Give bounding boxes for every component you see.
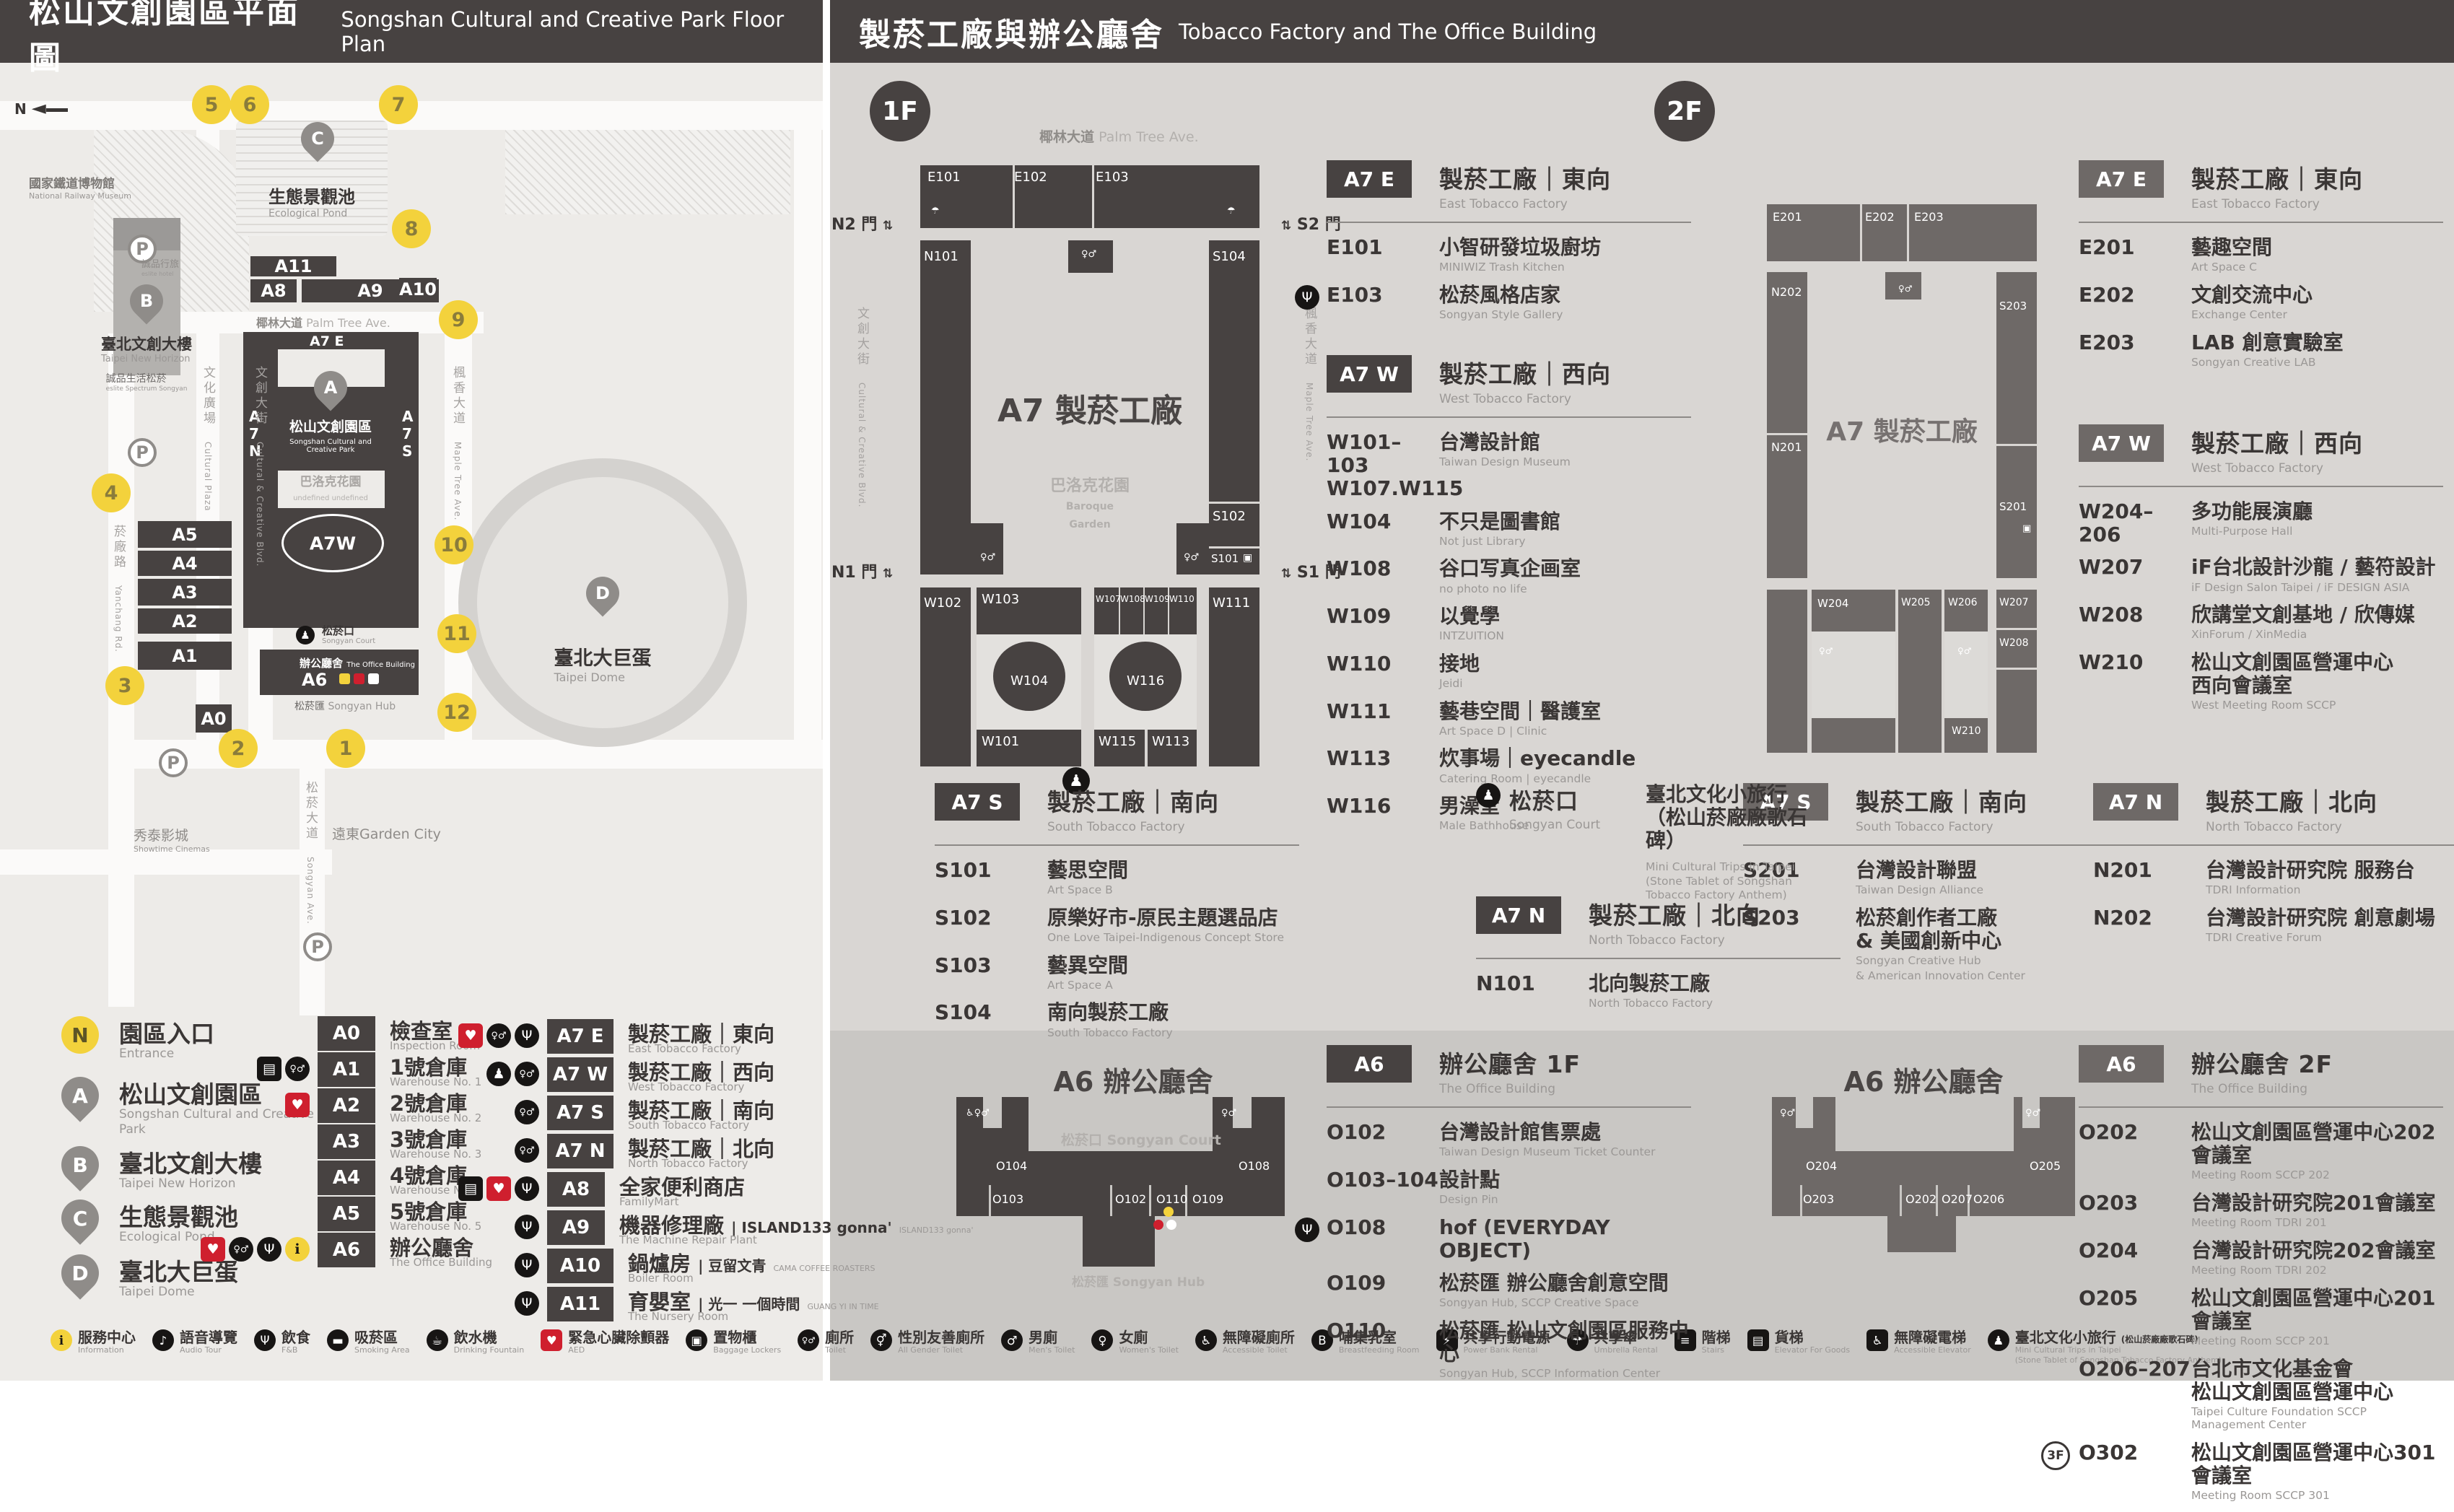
room-name-zh: 文創交流中心 [2191,284,2313,307]
listing-row-n202: N202台灣設計研究院 創意劇場TDRI Creative Forum [2093,906,2454,945]
room-name-en: Meeting Room SCCP 202 [2191,1168,2443,1182]
legend-icons-c3-a9: Ψ [515,1215,539,1239]
building-a6: 辦公廳舍 The Office BuildingA6 [260,650,419,695]
section-badge-a7e-2f: A7 E [2079,160,2164,198]
room-name-zh2: 松山文創園區營運中心 [2191,1381,2443,1404]
floor-2f-badge: 2F [1654,81,1715,141]
fnb-icon: Ψ [515,1253,539,1277]
listing-row-w109: W109以覺學INTZUITION [1327,605,1691,643]
facility-en: Stairs [1702,1345,1731,1355]
fnb-icon: Ψ [257,1237,281,1262]
facility-text: 服務中心Information [78,1329,136,1355]
pin-letter-d: D [586,577,619,610]
room-n201: N201 [1771,440,1802,454]
room-code: E201 [2079,236,2191,274]
section-title-zh: 辦公廳舍 1F [1439,1045,1581,1080]
room-name-en: Art Space C [2191,261,2272,274]
room-e201: E201 [1773,210,1802,224]
building-a4: A4 [138,551,232,576]
court-title-zh: 松菸口 [1509,783,1600,816]
room-text: 松山文創園區營運中心202會議室Meeting Room SCCP 202 [2191,1121,2443,1182]
room-text: 多功能展演廳Multi-Purpose Hall [2191,500,2313,546]
legend-chip-c2-a1: A1 [318,1052,375,1087]
room-code: O302 [2079,1441,2191,1503]
a6-court-label: 松菸口 Songyan Court [1061,1129,1221,1149]
facility-zh: 飲水機 [454,1329,525,1345]
plan-block [1907,204,1909,261]
legend-chip-c2-a3: A3 [318,1124,375,1159]
section-title-en: East Tobacco Factory [2191,197,2363,211]
facility-zh: 階梯 [1702,1329,1731,1345]
room-code: W210 [2079,651,2191,712]
section-badge-a7n-2f: A7 N [2093,783,2178,821]
room-e102: E102 [1014,170,1047,185]
office-building-plan-1f: A6 辦公廳舍O104O103O102O110O109O108松菸口 Songy… [953,1054,1314,1292]
legend-place-zh: 園區入口 [119,1015,214,1049]
room-n202: N202 [1771,285,1802,299]
listing-row-e201: E201藝趣空間Art Space C [2079,236,2443,274]
section-title-a7s-1f: 製菸工廠｜南向South Tobacco Factory [1047,783,1219,834]
room-o108: O108 [1239,1159,1270,1173]
map-aed-dot [354,673,364,684]
section-a7w-1f: A7 W製菸工廠｜西向West Tobacco FactoryW101–103W… [1327,355,1691,842]
room-name-zh: 小智研發垃圾廚坊 [1439,236,1601,259]
section-divider [2079,1106,2443,1108]
room-o102: O102 [1115,1192,1146,1206]
room-name-zh: 南向製菸工廠 [1047,1001,1173,1024]
facility-lockers: ▣置物櫃Baggage Lockers [686,1329,781,1355]
room-w111: W111 [1213,595,1250,611]
fnb-icon: Ψ [515,1291,539,1316]
section-divider [2093,844,2454,846]
room-name-zh: 接地 [1439,652,1480,676]
section-header-a7w-2f: A7 W製菸工廠｜西向West Tobacco Factory [2079,424,2443,476]
legend-pin-a: A [53,1069,107,1122]
a6-facility-glyph: ♿♀♂ [966,1108,990,1119]
court-title-en: Songyan Court [1509,818,1600,832]
fnb-icon: Ψ [515,1023,539,1048]
facility-acc_elev: ♿無障礙電梯Accessible Elevator [1866,1329,1971,1355]
room-w109: W109 [1145,594,1170,604]
room-name-en: Art Space B [1047,883,1128,897]
room-name-en: Meeting Room SCCP 201 [2191,1334,2443,1348]
plan-block [1996,590,2037,753]
listing-row-w101–103: W101–103W107.W115台灣設計館Taiwan Design Muse… [1327,431,1691,501]
court-item-zh: 臺北文化小旅行 [1646,783,1815,806]
facility-text: 置物櫃Baggage Lockers [713,1329,781,1355]
room-code: W108 [1327,557,1439,595]
a6-elev-dot [1166,1220,1176,1230]
court-item-en: Mini Cultural Trips in Taipei [1646,860,1815,874]
legend-icons-c3-a7s: ♀♂ [515,1100,539,1124]
legend-chip-c3-a9: A9 [547,1210,605,1245]
plan-block [1767,204,2037,261]
section-title-en: The Office Building [2191,1082,2333,1096]
section-divider [1327,222,1691,223]
section-title-a7s-2f: 製菸工廠｜南向South Tobacco Factory [1856,783,2027,834]
a6-block [989,1185,991,1216]
legend-chip-c3-a7n: A7 N [547,1134,613,1168]
court-left: ♟松菸口Songyan Court [1476,783,1646,901]
section-title-en: The Office Building [1439,1082,1581,1096]
row-icon: Ψ [1295,285,1319,310]
legend-pin-letter: D [61,1254,99,1292]
listing-row-w210: W210松山文創園區營運中心西向會議室West Meeting Room SCC… [2079,651,2443,712]
legend-place-zh: 松山文創園區 [119,1075,262,1110]
facility-allgender: ⚥性別友善廁所All Gender Toilet [870,1329,984,1355]
facility-text: 無障礙電梯Accessible Elevator [1894,1329,1971,1355]
room-code: N101 [1476,972,1589,1010]
room-text: 松菸風格店家Songyan Style Gallery [1439,284,1563,322]
room-text: 藝異空間Art Space A [1047,954,1128,992]
a6-hub-label: 松菸匯 Songyan Hub [1072,1272,1205,1290]
room-o103: O103 [992,1192,1023,1206]
room-name-zh: 欣講堂文創基地 / 欣傳媒 [2191,603,2415,626]
toilet-icon: ♀♂ [285,1057,310,1081]
room-code: S103 [935,954,1047,992]
parking-icon: P [303,932,332,961]
room-w104: W104 [1010,673,1048,689]
legend-place-en: Taipei Dome [119,1285,328,1300]
plan2-facility-glyph: ♀♂ [1957,646,1972,656]
label-ccblvd: 文創大街 Cultural & Creative Blvd. [251,366,269,567]
parking-icon: P [159,748,188,777]
map-legend: N園區入口EntranceA松山文創園區Songshan Cultural an… [0,1007,823,1324]
room-text: 以覺學INTZUITION [1439,605,1504,643]
legend-pin-letter: B [61,1146,99,1184]
building-label-a6: A6 [302,670,327,690]
room-text: 台灣設計聯盟Taiwan Design Alliance [1856,859,1983,897]
aed-icon: ♥ [285,1093,310,1117]
room-text: hof (EVERYDAY OBJECT) [1439,1216,1691,1262]
label-court: 松菸口Songyan Court [322,624,375,646]
plan1-street-right: 楓香大道 Maple Tree Ave. [1301,307,1319,461]
room-name-en: Jeidi [1439,677,1480,691]
room-name-en: Art Space A [1047,979,1128,992]
floor-plan-2f: E201E202E203N202N201S203S201W204W205W206… [1741,162,2063,765]
legend-pin-d: D [53,1246,107,1300]
info-icon: i [285,1237,310,1262]
room-name-zh: 台灣設計聯盟 [1856,859,1983,882]
a6-info-dot [1163,1207,1174,1217]
plan-block [920,587,971,766]
room-w206: W206 [1948,597,1978,608]
room-code: W116 [1327,795,1439,833]
room-code: O103–104 [1327,1168,1439,1207]
section-title-zh: 製菸工廠｜西向 [1439,355,1611,390]
room-name-en: XinForum / XinMedia [2191,628,2415,642]
section-badge-a7w-1f: A7 W [1327,355,1412,393]
facility-en: All Gender Toilet [898,1345,984,1355]
facility-text: 緊急心臟除顫器AED [568,1329,669,1355]
facility-en: Audio Tour [180,1345,237,1355]
room-w205: W205 [1901,597,1931,608]
section-title-a6-2f: 辦公廳舍 2FThe Office Building [2191,1045,2333,1096]
toilet-icon: ♀♂ [515,1062,539,1086]
room-name-zh: 台灣設計研究院201會議室 [2191,1192,2435,1215]
room-o204: O204 [1806,1159,1837,1173]
room-code: W109 [1327,605,1439,643]
building-label-a1: A1 [172,646,197,666]
section-title-en: East Tobacco Factory [1439,197,1611,211]
map-pin-c: C [294,115,341,162]
room-name-zh: 松菸創作者工廠 [1856,906,2025,930]
accessible-icon: ♿ [1195,1329,1217,1351]
listing-row-e203: E203LAB 創意實驗室Songyan Creative LAB [2079,331,2443,370]
legend-icons-c3-a8: ▤♥Ψ [458,1176,539,1201]
listing-row-o110: O110松菸匯 松山文創園區服務中心Songyan Hub, SCCP Info… [1327,1319,1691,1381]
map-info-dot [339,673,350,684]
facility-text: 飲水機Drinking Fountain [454,1329,525,1355]
room-name-zh: 松山文創園區營運中心301會議室 [2191,1441,2443,1487]
room-name-zh: 炊事場｜eyecandle [1439,747,1636,770]
room-name-en: Songyan Hub, SCCP Creative Space [1439,1296,1669,1310]
row-icon: Ψ [1295,1218,1319,1242]
room-s101: S101 [1211,552,1239,565]
room-name-en: Art Space D | Clinic [1439,725,1601,738]
label-sccp-en: Songshan Cultural andCreative Park [289,438,372,454]
section-badge-a7n-1f: A7 N [1476,896,1561,934]
facility-zh: 廁所 [825,1329,854,1345]
room-name-en: Meeting Room SCCP 301 [2191,1489,2443,1503]
facility-zh: 女廁 [1119,1329,1178,1345]
room-text: 台灣設計研究院 創意劇場TDRI Creative Forum [2206,906,2435,945]
office-building-plan-2f: A6 辦公廳舍O204O203O202O207O206O205♀♂♀♂ [1768,1054,2079,1292]
section-header-a7e-1f: A7 E製菸工廠｜東向East Tobacco Factory [1327,160,1691,211]
plan-block [971,523,1003,574]
facility-zh: 語音導覽 [180,1329,237,1345]
building-label-a4: A4 [172,554,197,574]
room-text: 台北市文化基金會松山文創園區營運中心Taipei Culture Foundat… [2191,1358,2443,1433]
room-code: S203 [1743,906,1856,983]
facility-text: 廁所Toilet [825,1329,854,1355]
room-text: 原樂好市-原民主題選品店One Love Taipei-Indigenous C… [1047,906,1284,945]
room-text: iF台北設計沙龍 / 藝符設計iF Design Salon Taipei / … [2191,556,2435,594]
legend-icons-c2-a2: ♥ [285,1093,310,1117]
section-title-zh: 製菸工廠｜西向 [2191,424,2363,459]
building-label-a7s: A [402,408,413,425]
section-header-a7n-2f: A7 N製菸工廠｜北向North Tobacco Factory [2093,783,2454,834]
listing-row-w113: W113炊事場｜eyecandleCatering Room | eyecand… [1327,747,1691,785]
legend-icons-c2-a6: ♥♀♂Ψi [201,1237,310,1262]
plan1-street-top: 椰林大道 Palm Tree Ave. [1039,126,1199,146]
section-title-a7e-1f: 製菸工廠｜東向East Tobacco Factory [1439,160,1611,211]
room-name-en: Meeting Room TDRI 202 [2191,1264,2435,1277]
room-w204: W204 [1817,597,1848,610]
plan-block [1209,502,1259,504]
building-label-a7s: 7 [402,425,412,442]
room-text: 藝巷空間｜醫護室Art Space D | Clinic [1439,700,1601,738]
building-label-a0: A0 [201,709,226,729]
room-name-zh: 松菸風格店家 [1439,284,1563,307]
room-o109: O109 [1192,1192,1223,1206]
listing-row-e101: E101小智研發垃圾廚坊MINIWIZ Trash Kitchen [1327,236,1691,274]
room-s203: S203 [1999,300,2027,313]
entrance-9: 9 [439,300,478,339]
section-badge-a6-1f: A6 [1327,1045,1412,1083]
room-text: 台灣設計研究院 服務台TDRI Information [2206,859,2415,897]
legend-chip-c3-a8: A8 [547,1172,605,1207]
goods-elev-icon: ▤ [1747,1329,1769,1351]
room-name-zh: 松山文創園區營運中心 [2191,651,2393,674]
listing-row-s203: S203松菸創作者工廠& 美國創新中心Songyan Creative Hub&… [1743,906,2108,983]
room-name-en: South Tobacco Factory [1047,1026,1173,1040]
lockers-icon: ▣ [686,1329,707,1351]
room-text: 松山文創園區營運中心西向會議室West Meeting Room SCCP [2191,651,2393,712]
entrance-1: 1 [326,729,365,768]
smoking-icon: ▬ [327,1329,349,1351]
room-text: 南向製菸工廠South Tobacco Factory [1047,1001,1173,1039]
section-badge-a7s-1f: A7 S [935,783,1020,821]
room-text: 藝思空間Art Space B [1047,859,1128,897]
aed-icon: ♥ [201,1237,225,1262]
plan2-facility-glyph: ♀♂ [1819,646,1833,656]
legend-pin-letter: A [61,1077,99,1114]
legend-pin-c: C [53,1192,107,1245]
listing-row-w110: W110接地Jeidi [1327,652,1691,691]
legend-chip-c2-a0: A0 [318,1016,375,1051]
room-name-zh: 松菸匯 松山文創園區服務中心 [1439,1319,1691,1365]
facility-zh: 置物櫃 [713,1329,781,1345]
legend-icons-c3-a7e: ♥♀♂Ψ [458,1023,539,1048]
listing-row-s101: S101藝思空間Art Space B [935,859,1299,897]
room-name-en: Songyan Hub, SCCP Information Center [1439,1367,1691,1381]
map-pin-d: D [579,569,626,616]
building-label-a2: A2 [172,611,197,632]
a6-block [1900,1185,1902,1216]
room-code: O108 [1327,1216,1439,1262]
section-a7w-2f: A7 W製菸工廠｜西向West Tobacco FactoryW204–206多… [2079,424,2443,722]
room-name-zh: 原樂好市-原民主題選品店 [1047,906,1284,930]
building-a2: A2 [138,608,232,634]
facility-aed: ♥緊急心臟除顫器AED [541,1329,669,1355]
room-s102: S102 [1213,509,1246,524]
mens-icon: ♂ [1001,1329,1023,1351]
a6-facility-glyph: ♀♂ [1221,1108,1236,1119]
room-w108: W108 [1120,594,1145,604]
building-label-a7e: A7 E [310,333,344,349]
allgender-icon: ⚥ [870,1329,892,1351]
building-label-a7w: A7W [310,533,356,554]
room-name-zh: 台灣設計研究院202會議室 [2191,1239,2435,1262]
section-title-en: West Tobacco Factory [1439,392,1611,406]
room-code: O204 [2079,1239,2191,1277]
section-header-a7e-2f: A7 E製菸工廠｜東向East Tobacco Factory [2079,160,2443,211]
a6-facility-glyph: ♀♂ [1780,1108,1795,1119]
label-palm-tree-ave: 椰林大道 Palm Tree Ave. [256,316,390,330]
header-park-floor-plan: 松山文創園區平面圖 Songshan Cultural and Creative… [0,0,823,63]
listing-row-o203: O203台灣設計研究院201會議室Meeting Room TDRI 201 [2079,1192,2443,1230]
facility-goods_elev: ▤貨梯Elevator For Goods [1747,1329,1850,1355]
plan-block [1767,433,1807,435]
label-sccp-zh: 松山文創園區 [289,416,372,436]
room-text: 小智研發垃圾廚坊MINIWIZ Trash Kitchen [1439,236,1601,274]
room-n101: N101 [924,249,959,264]
room-name-en: iF Design Salon Taipei / iF DESIGN ASIA [2191,581,2435,595]
section-title-zh: 製菸工廠｜南向 [1047,783,1219,818]
legend-pin-b: B [53,1138,107,1192]
section-badge-a6-2f: A6 [2079,1045,2164,1083]
listing-row-o302: 3FO302松山文創園區營運中心301會議室Meeting Room SCCP … [2079,1441,2443,1503]
pin-letter-a: A [314,371,347,404]
building-a11: A11 [250,256,336,276]
room-code: O206–207 [2079,1358,2191,1433]
room-name-zh: iF台北設計沙龍 / 藝符設計 [2191,556,2435,579]
room-s201: S201 [1999,500,2027,513]
plan-block [1944,590,1988,632]
room-code: O203 [2079,1192,2191,1230]
section-title-a7w-2f: 製菸工廠｜西向West Tobacco Factory [2191,424,2363,476]
room-name-en: One Love Taipei-Indigenous Concept Store [1047,931,1284,945]
room-name-zh: 藝異空間 [1047,954,1128,977]
legend-bldg-en: West Tobacco Factory [628,1080,744,1093]
building-label-a9: A9 [357,281,383,301]
facility-en: Baggage Lockers [713,1345,781,1355]
entrance-7: 7 [379,85,418,124]
room-w207: W207 [1999,597,2029,608]
room-w113: W113 [1152,734,1189,749]
facility-en: Accessible Elevator [1894,1345,1971,1355]
label-yanchang-rd: 菸廠路 Yanchang Rd. [110,525,128,652]
room-name-en: Songyan Creative LAB [2191,356,2344,370]
label-baroque-en: undefined undefined [293,494,368,503]
facility-accessible: ♿無障礙廁所Accessible Toilet [1195,1329,1295,1355]
facility-en: AED [568,1345,669,1355]
building-a8: A8 [250,279,297,302]
room-text: 台灣設計館Taiwan Design Museum [1439,431,1571,501]
toilet-icon: ♀♂ [515,1138,539,1163]
aed-icon: ♥ [486,1176,511,1201]
listing-row-w108: W108谷口写真企画室no photo no life [1327,557,1691,595]
label-cplaza: 文化廣場 Cultural Plaza [199,366,217,512]
aed-icon: ♥ [541,1329,562,1351]
room-code: S101 [935,859,1047,897]
listing-row-w104: W104不只是圖書館Not just Library [1327,510,1691,549]
section-title-a7n-2f: 製菸工廠｜北向North Tobacco Factory [2206,783,2377,834]
listing-row-o204: O204台灣設計研究院202會議室Meeting Room TDRI 202 [2079,1239,2443,1277]
plan-block [1209,587,1259,766]
section-divider [1327,1106,1691,1108]
legend-icons-c3-a11: Ψ [515,1291,539,1316]
room-name-en: MINIWIZ Trash Kitchen [1439,261,1601,274]
room-name-zh: 台灣設計研究院 服務台 [2206,859,2415,882]
a6-block [1887,1216,1956,1252]
building-label-a7s: S [402,442,412,460]
room-name-en: Taiwan Design Museum Ticket Counter [1439,1145,1655,1159]
entrance-12: 12 [437,693,476,732]
section-divider [2079,222,2443,223]
room-text: 台灣設計館售票處Taiwan Design Museum Ticket Coun… [1439,1121,1655,1159]
toilet-icon: ♀♂ [798,1329,819,1351]
a6-block [1083,1216,1155,1267]
room-name-zh: 以覺學 [1439,605,1504,628]
room-o104: O104 [996,1159,1027,1173]
header-tobacco-factory: 製菸工廠與辦公廳舍 Tobacco Factory and The Office… [830,0,2454,63]
facility-en: Accessible Toilet [1223,1345,1295,1355]
facility-audio: ♪語音導覽Audio Tour [152,1329,237,1355]
legend-icons-c3-a7n: ♀♂ [515,1138,539,1163]
legend-chip-c2-a6: A6 [318,1233,375,1267]
listing-row-s104: S104南向製菸工廠South Tobacco Factory [935,1001,1299,1039]
room-w103: W103 [982,592,1019,607]
section-badge-a7e-1f: A7 E [1327,160,1412,198]
room-w101: W101 [982,734,1019,749]
section-title-en: West Tobacco Factory [2191,461,2363,476]
plan-block [1092,165,1094,228]
room-w116: W116 [1127,673,1164,689]
facility-zh: 無障礙電梯 [1894,1329,1971,1345]
room-e101: E101 [927,170,961,185]
